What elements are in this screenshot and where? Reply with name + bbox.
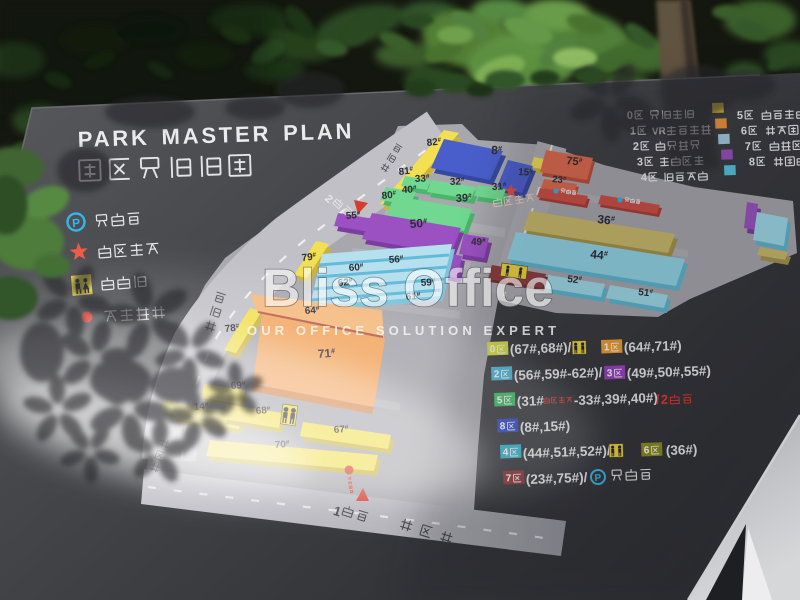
svg-text:P: P — [71, 216, 80, 231]
svg-text:OUR OFFICE SOLUTION EXPERT: OUR OFFICE SOLUTION EXPERT — [247, 323, 560, 338]
svg-text:Bliss Office: Bliss Office — [262, 259, 554, 318]
